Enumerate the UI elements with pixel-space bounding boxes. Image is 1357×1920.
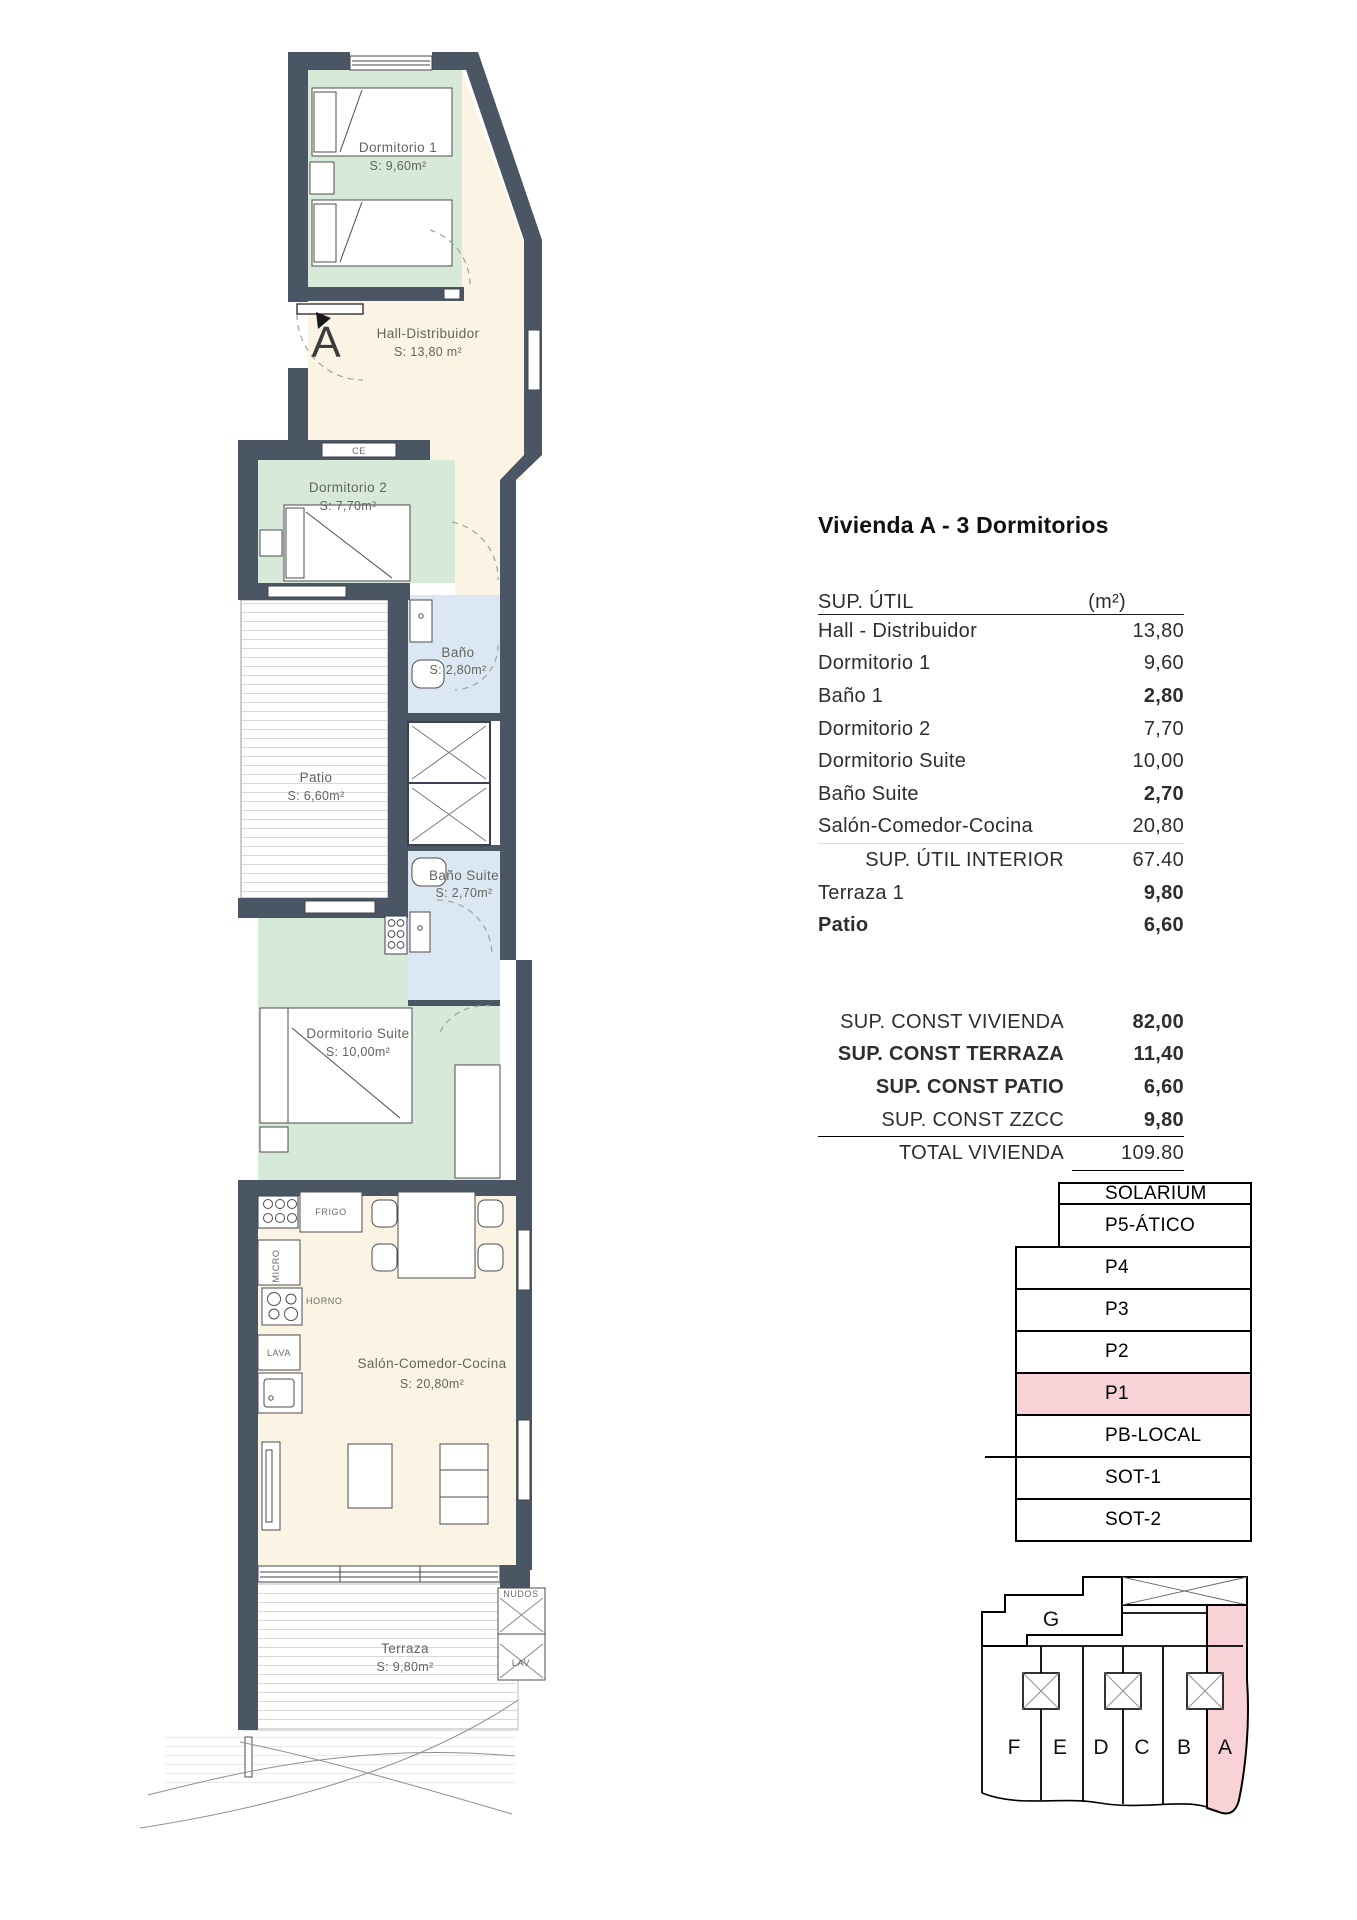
room-label-dormitorio-suite: Dormitorio Suite (306, 1026, 409, 1041)
floorplan-canvas: A Dormitorio 1 S: 9,60m² Hall-Distribuid… (0, 0, 1357, 1920)
room-label-patio: Patio (300, 770, 333, 785)
patio-deck (241, 600, 388, 898)
table-row: Salón-Comedor-Cocina20,80 (818, 811, 1184, 844)
level-pb-local: PB-LOCAL (1015, 1414, 1252, 1458)
room-area-terraza: S: 9,80m² (377, 1660, 434, 1674)
table-row-subtotal: SUP. ÚTIL INTERIOR67.40 (818, 843, 1184, 877)
sup-util-header: SUP. ÚTIL (m²) (818, 585, 1184, 615)
level-p1-highlighted: P1 (1015, 1372, 1252, 1416)
keyplan-label-a: A (1218, 1736, 1232, 1759)
room-label-dormitorio1: Dormitorio 1 (359, 140, 437, 155)
table-row: Dormitorio Suite10,00 (818, 745, 1184, 778)
keyplan-label-e: E (1053, 1736, 1067, 1759)
total-underline (1072, 1170, 1184, 1171)
room-area-hall: S: 13,80 m² (394, 345, 462, 359)
room-area-dormitorio-suite: S: 10,00m² (326, 1045, 390, 1059)
keyplan-break-line (982, 1793, 1207, 1807)
keyplan: G F E D C B A (982, 1577, 1248, 1814)
label-lava: LAVA (267, 1348, 291, 1358)
table-row: Dormitorio 19,60 (818, 648, 1184, 681)
table-row: SUP. CONST TERRAZA11,40 (818, 1039, 1184, 1072)
level-sot-1: SOT-1 (1015, 1456, 1252, 1500)
room-area-bano-suite: S: 2,70m² (436, 886, 493, 900)
keyplan-label-b: B (1177, 1736, 1191, 1759)
table-row: Terraza 19,80 (818, 877, 1184, 910)
levels-stack: SOLARIUM P5-ÁTICO P4 P3 P2 P1 PB-LOCAL S… (1015, 1182, 1252, 1542)
sup-util-unit: (m²) (1088, 591, 1126, 614)
sup-util-table: SUP. ÚTIL (m²) Hall - Distribuidor13,80 … (818, 585, 1184, 942)
room-area-bano: S: 2,80m² (430, 663, 487, 677)
table-row: Hall - Distribuidor13,80 (818, 615, 1184, 648)
label-horno: HORNO (306, 1296, 343, 1306)
label-ce: CE (352, 446, 366, 456)
label-lav: LAV (512, 1658, 530, 1668)
page-title: Vivienda A - 3 Dormitorios (818, 512, 1109, 539)
room-area-salon: S: 20,80m² (400, 1377, 464, 1391)
room-area-dormitorio1: S: 9,60m² (370, 159, 427, 173)
room-label-bano-suite: Baño Suite (429, 868, 499, 883)
table-row: SUP. CONST ZZCC9,80 (818, 1104, 1184, 1137)
keyplan-label-f: F (1008, 1736, 1021, 1759)
level-p4: P4 (1015, 1246, 1252, 1290)
table-row: SUP. CONST PATIO6,60 (818, 1071, 1184, 1104)
level-p3: P3 (1015, 1288, 1252, 1332)
label-frigo: FRIGO (315, 1207, 347, 1217)
room-label-terraza: Terraza (381, 1641, 429, 1656)
sup-const-table: SUP. CONST VIVIENDA82,00 SUP. CONST TERR… (818, 1006, 1184, 1171)
table-row: Patio6,60 (818, 909, 1184, 942)
entrance-door-leaf (297, 304, 363, 314)
room-label-hall: Hall-Distribuidor (377, 326, 480, 341)
room-label-salon: Salón-Comedor-Cocina (357, 1356, 506, 1371)
keyplan-label-d: D (1093, 1736, 1108, 1759)
level-p2: P2 (1015, 1330, 1252, 1374)
room-label-bano: Baño (441, 645, 474, 660)
table-row: Baño Suite2,70 (818, 778, 1184, 811)
sup-util-header-label: SUP. ÚTIL (818, 591, 914, 614)
terraza-deck (165, 1584, 518, 1790)
label-nudos: NUDOS (503, 1589, 539, 1599)
room-label-dormitorio2: Dormitorio 2 (309, 480, 387, 495)
table-row: Dormitorio 27,70 (818, 713, 1184, 746)
table-row: SUP. CONST VIVIENDA82,00 (818, 1006, 1184, 1039)
ground-line (985, 1456, 1019, 1458)
keyplan-label-g: G (1043, 1608, 1059, 1631)
level-solarium: SOLARIUM (1058, 1182, 1252, 1205)
label-micro: MICRO (271, 1250, 281, 1283)
room-area-patio: S: 6,60m² (288, 789, 345, 803)
unit-marker-label: A (311, 318, 341, 367)
level-sot-2: SOT-2 (1015, 1498, 1252, 1542)
room-area-dormitorio2: S: 7,70m² (320, 499, 377, 513)
keyplan-label-c: C (1134, 1736, 1149, 1759)
table-row: Baño 12,80 (818, 680, 1184, 713)
table-row-total: TOTAL VIVIENDA109.80 (818, 1136, 1184, 1170)
level-p5-atico: P5-ÁTICO (1058, 1203, 1252, 1248)
